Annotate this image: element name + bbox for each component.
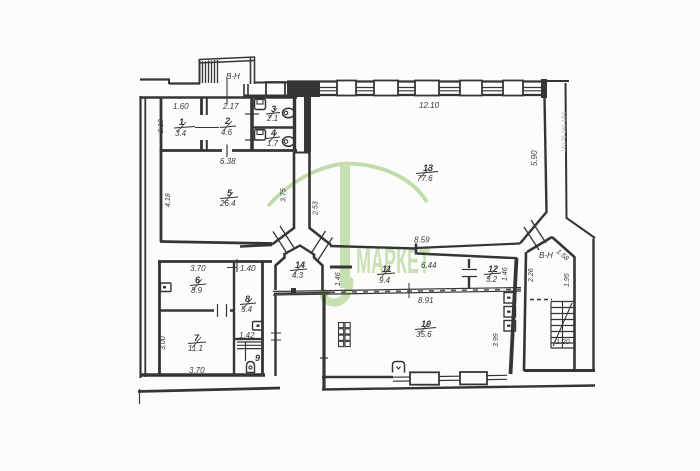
svg-text:12.10: 12.10 — [419, 101, 440, 110]
svg-text:8.91: 8.91 — [418, 296, 434, 305]
svg-text:3.99: 3.99 — [493, 333, 500, 347]
svg-text:1.95: 1.95 — [564, 273, 571, 287]
svg-text:35.6: 35.6 — [416, 330, 432, 339]
svg-text:4.3: 4.3 — [292, 271, 304, 280]
svg-text:4: 4 — [270, 128, 276, 138]
svg-text:2.1: 2.1 — [266, 114, 278, 123]
svg-text:8.9: 8.9 — [191, 286, 203, 295]
svg-text:11: 11 — [382, 264, 391, 274]
svg-text:14: 14 — [295, 260, 305, 270]
svg-text:1.7: 1.7 — [267, 139, 279, 148]
svg-text:В-Н: В-Н — [226, 72, 240, 81]
svg-text:2.17: 2.17 — [222, 102, 239, 111]
svg-text:3.00: 3.00 — [160, 336, 167, 350]
svg-text:9.4: 9.4 — [379, 276, 391, 285]
svg-text:В-Н: В-Н — [539, 251, 553, 260]
svg-text:1.46: 1.46 — [502, 267, 509, 281]
svg-text:11.1: 11.1 — [188, 344, 203, 353]
svg-text:1.40: 1.40 — [240, 264, 256, 273]
svg-text:2.26: 2.26 — [528, 268, 535, 283]
svg-text:5.4: 5.4 — [241, 305, 253, 314]
svg-text:13: 13 — [423, 163, 433, 173]
svg-text:8.59: 8.59 — [414, 236, 430, 245]
svg-text:4.18: 4.18 — [165, 193, 172, 207]
svg-text:1.60: 1.60 — [173, 102, 189, 111]
svg-text:16176 161 164: 16176 161 164 — [562, 111, 568, 152]
svg-text:6.44: 6.44 — [421, 261, 437, 270]
svg-text:2.53: 2.53 — [313, 201, 320, 216]
svg-text:10: 10 — [421, 319, 431, 329]
svg-text:5.90: 5.90 — [530, 150, 539, 166]
svg-text:1.20: 1.20 — [556, 339, 570, 346]
svg-text:3.2: 3.2 — [486, 275, 498, 284]
svg-text:1.42: 1.42 — [239, 331, 255, 340]
svg-text:1.46: 1.46 — [335, 272, 342, 286]
svg-text:2.10: 2.10 — [158, 119, 165, 134]
svg-text:3.70: 3.70 — [189, 366, 205, 375]
svg-text:3.70: 3.70 — [190, 264, 206, 273]
svg-text:4.6: 4.6 — [221, 128, 233, 137]
svg-text:6.38: 6.38 — [220, 157, 236, 166]
svg-text:26.4: 26.4 — [219, 199, 236, 208]
svg-text:8: 8 — [245, 294, 250, 304]
svg-text:77.6: 77.6 — [417, 174, 433, 183]
svg-text:3.4: 3.4 — [175, 129, 187, 138]
svg-text:9: 9 — [255, 353, 260, 363]
svg-text:12: 12 — [488, 264, 498, 274]
svg-text:3.75: 3.75 — [281, 188, 288, 202]
